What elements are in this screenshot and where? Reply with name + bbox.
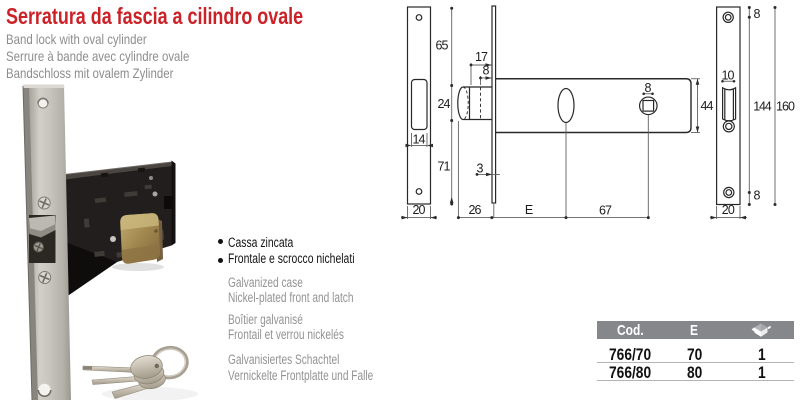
svg-text:71: 71: [438, 160, 451, 174]
svg-text:20: 20: [413, 203, 426, 217]
svg-text:8: 8: [754, 189, 761, 203]
svg-text:E: E: [525, 203, 533, 217]
svg-text:8: 8: [483, 64, 490, 78]
svg-text:17: 17: [475, 50, 488, 64]
svg-text:10: 10: [722, 69, 735, 83]
svg-text:24: 24: [438, 97, 451, 111]
svg-text:20: 20: [722, 203, 735, 217]
svg-text:8: 8: [754, 7, 761, 21]
svg-text:26: 26: [469, 203, 482, 217]
svg-text:14: 14: [413, 133, 426, 147]
svg-text:67: 67: [599, 204, 612, 218]
svg-text:144: 144: [753, 100, 772, 114]
svg-text:160: 160: [776, 100, 795, 114]
svg-text:44: 44: [701, 99, 714, 113]
svg-text:65: 65: [436, 39, 449, 53]
svg-text:8: 8: [645, 81, 652, 95]
svg-text:3: 3: [477, 162, 484, 176]
